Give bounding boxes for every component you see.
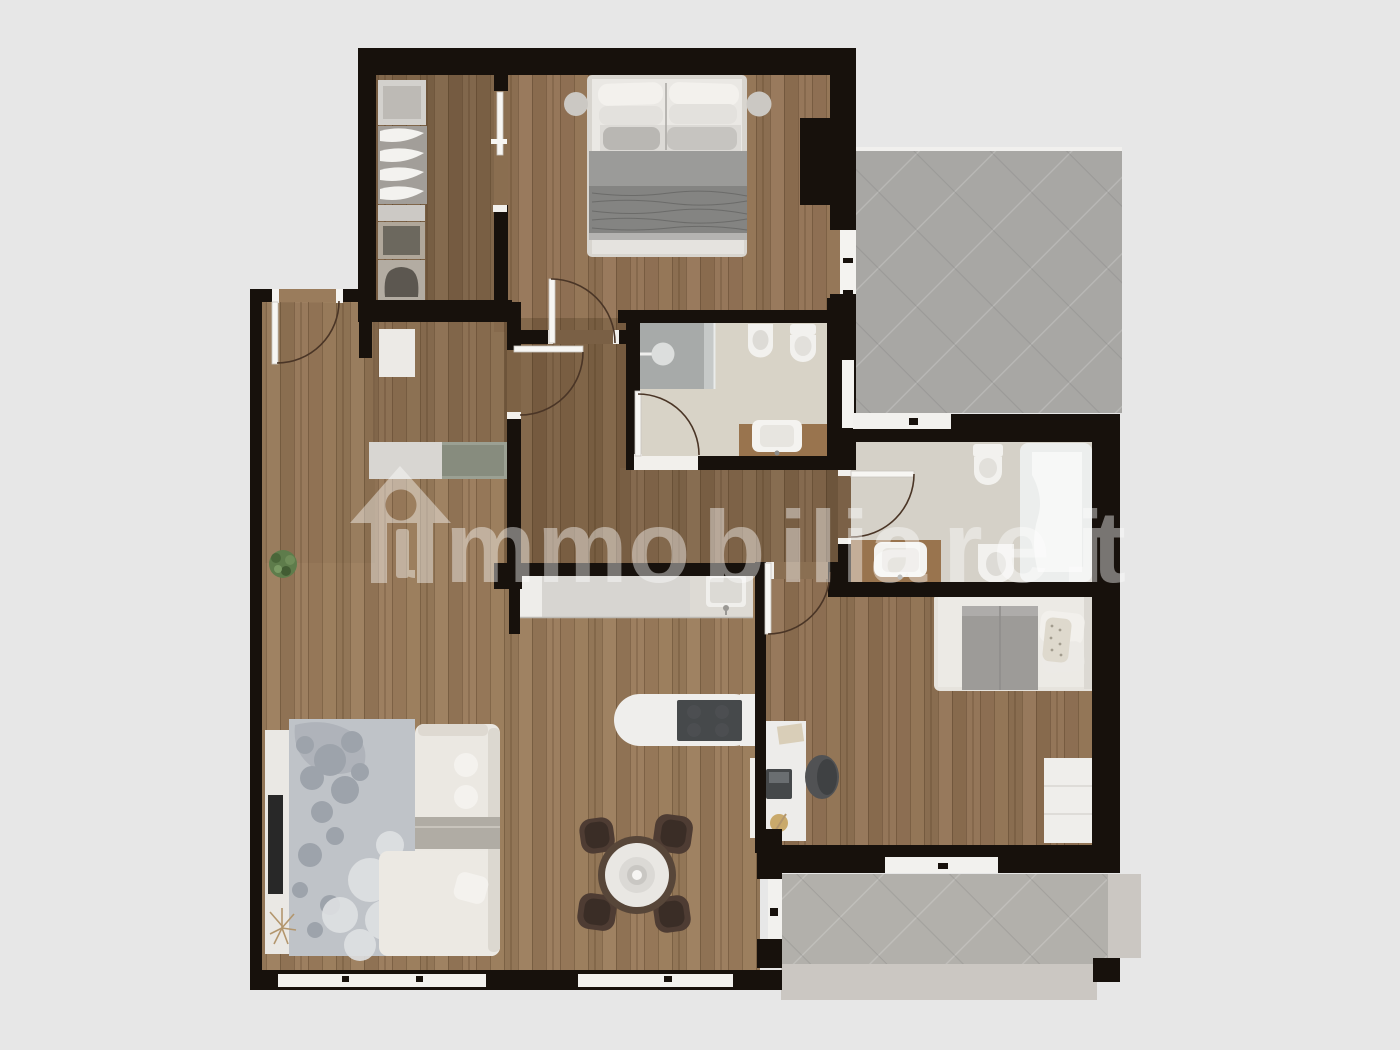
svg-text:mmobiliare.it: mmobiliare.it	[445, 490, 1126, 604]
